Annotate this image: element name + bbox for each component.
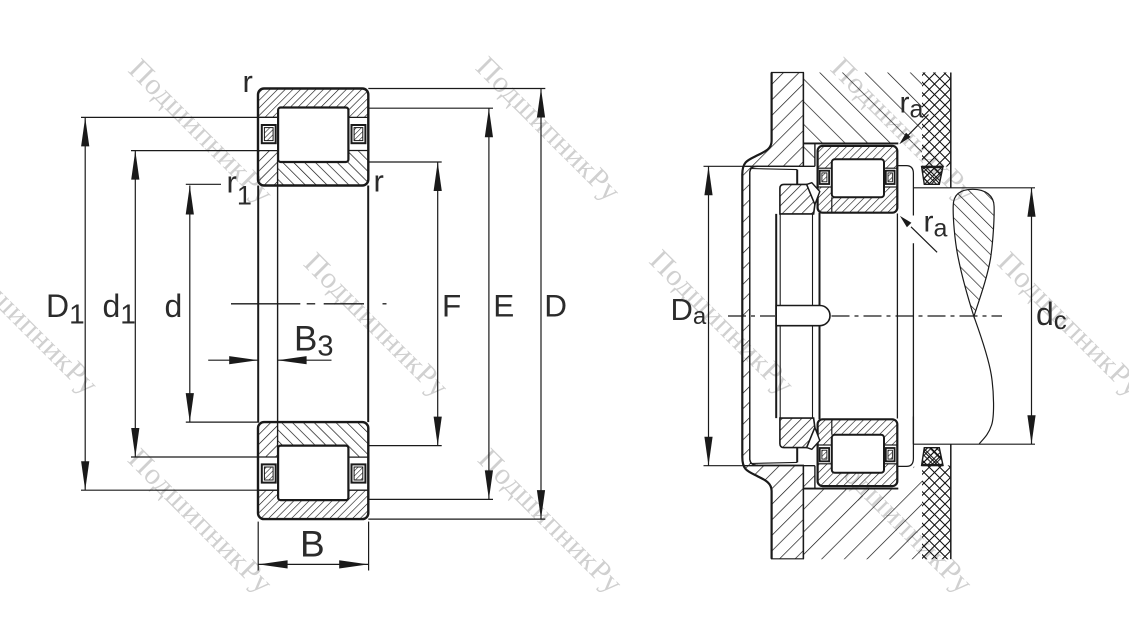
svg-text:F: F [442, 288, 461, 324]
svg-text:B: B [300, 524, 325, 565]
svg-text:r: r [374, 164, 384, 199]
svg-text:d: d [165, 288, 183, 324]
svg-text:E: E [493, 288, 514, 324]
svg-text:r: r [243, 64, 253, 99]
svg-text:D: D [544, 288, 567, 324]
